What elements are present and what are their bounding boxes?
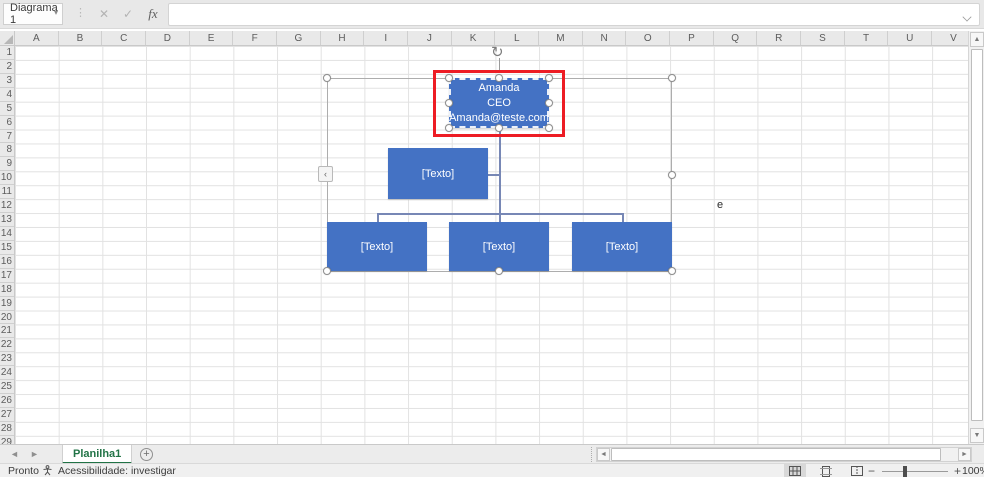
select-all-button[interactable] <box>0 31 15 46</box>
row-header[interactable]: 21 <box>0 324 14 338</box>
row-header[interactable]: 16 <box>0 255 14 269</box>
row-header[interactable]: 12 <box>0 199 14 213</box>
org-node-assistant[interactable]: [Texto] <box>388 148 488 199</box>
tab-scroll-splitter[interactable] <box>591 447 594 462</box>
row-header[interactable]: 10 <box>0 171 14 185</box>
status-bar: Pronto Acessibilidade: investigar − + 10… <box>0 463 984 477</box>
formula-input[interactable] <box>168 3 980 26</box>
scroll-right-icon[interactable]: ► <box>958 448 971 461</box>
status-mode: Pronto <box>8 465 39 477</box>
column-header[interactable]: Q <box>714 31 758 46</box>
org-node-subordinate-3[interactable]: [Texto] <box>572 222 672 271</box>
zoom-slider-track[interactable] <box>882 471 948 472</box>
column-header[interactable]: B <box>59 31 103 46</box>
row-header[interactable]: 7 <box>0 130 14 144</box>
column-header[interactable]: J <box>408 31 452 46</box>
name-box-dropdown-icon[interactable]: ▾ <box>54 8 58 17</box>
row-header[interactable]: 25 <box>0 380 14 394</box>
frame-handle-bottom-right[interactable] <box>668 267 676 275</box>
column-header[interactable]: T <box>845 31 889 46</box>
frame-handle-bottom-mid[interactable] <box>495 267 503 275</box>
column-header[interactable]: A <box>15 31 59 46</box>
row-header[interactable]: 27 <box>0 408 14 422</box>
scroll-down-icon[interactable]: ▼ <box>970 428 984 443</box>
column-header[interactable]: I <box>364 31 408 46</box>
connector-trunk <box>499 128 501 214</box>
row-header[interactable]: 6 <box>0 116 14 130</box>
org-node-subordinate-1[interactable]: [Texto] <box>327 222 427 271</box>
column-header[interactable]: P <box>670 31 714 46</box>
column-header[interactable]: V <box>932 31 968 46</box>
row-header[interactable]: 3 <box>0 74 14 88</box>
frame-handle-top-right[interactable] <box>668 74 676 82</box>
scroll-left-icon[interactable]: ◄ <box>597 448 610 461</box>
row-header[interactable]: 23 <box>0 352 14 366</box>
rotation-handle-icon[interactable]: ↻ <box>491 43 504 61</box>
row-header[interactable]: 1 <box>0 46 14 60</box>
frame-handle-bottom-left[interactable] <box>323 267 331 275</box>
connector-drop-2 <box>499 213 501 222</box>
row-header[interactable]: 13 <box>0 213 14 227</box>
row-header[interactable]: 15 <box>0 241 14 255</box>
accessibility-status[interactable]: Acessibilidade: investigar <box>58 465 176 477</box>
column-header[interactable]: S <box>801 31 845 46</box>
row-header[interactable]: 20 <box>0 311 14 325</box>
column-header[interactable]: H <box>321 31 365 46</box>
selection-highlight-annotation <box>433 70 565 137</box>
connector-drop-3 <box>622 213 624 222</box>
column-header[interactable]: C <box>102 31 146 46</box>
drag-grip-icon: ⋮ <box>75 6 84 19</box>
vertical-scrollbar[interactable]: ▲ ▼ <box>968 31 984 444</box>
enter-button[interactable]: ✓ <box>117 3 139 25</box>
zoom-in-button[interactable]: + <box>954 464 961 477</box>
sheet-tab-planilha1[interactable]: Planilha1 <box>62 445 132 464</box>
column-header[interactable]: U <box>888 31 932 46</box>
scroll-up-icon[interactable]: ▲ <box>970 32 984 47</box>
row-header[interactable]: 2 <box>0 60 14 74</box>
accessibility-icon <box>42 465 53 477</box>
page-break-view-button[interactable] <box>846 464 868 477</box>
row-header[interactable]: 14 <box>0 227 14 241</box>
frame-handle-mid-right[interactable] <box>668 171 676 179</box>
row-header[interactable]: 19 <box>0 297 14 311</box>
excel-window: Diagrama 1 ▾ ⋮ ✕ ✓ fx ABCDEFGHIJKLMNOPQR… <box>0 0 984 477</box>
zoom-level[interactable]: 100% <box>962 465 984 477</box>
row-header[interactable]: 17 <box>0 269 14 283</box>
row-header[interactable]: 26 <box>0 394 14 408</box>
column-header[interactable]: M <box>539 31 583 46</box>
text-pane-toggle-button[interactable]: ‹ <box>318 166 333 182</box>
column-header[interactable]: G <box>277 31 321 46</box>
frame-handle-top-left[interactable] <box>323 74 331 82</box>
row-header[interactable]: 9 <box>0 157 14 171</box>
row-header[interactable]: 8 <box>0 143 14 157</box>
cell-value-Q12[interactable]: e <box>717 199 723 211</box>
row-header[interactable]: 4 <box>0 88 14 102</box>
insert-function-button[interactable]: fx <box>142 3 164 25</box>
view-shortcuts <box>784 464 868 477</box>
row-header[interactable]: 28 <box>0 422 14 436</box>
row-header[interactable]: 18 <box>0 283 14 297</box>
horizontal-scrollbar[interactable]: ◄ ► <box>596 447 972 462</box>
select-all-icon <box>4 35 13 44</box>
zoom-out-button[interactable]: − <box>868 464 875 477</box>
row-header[interactable]: 11 <box>0 185 14 199</box>
connector-drop-1 <box>377 213 379 222</box>
formula-bar: Diagrama 1 ▾ ⋮ ✕ ✓ fx <box>0 0 984 29</box>
connector-assistant <box>488 174 500 176</box>
column-header[interactable]: D <box>146 31 190 46</box>
column-header[interactable]: N <box>583 31 627 46</box>
row-header[interactable]: 5 <box>0 102 14 116</box>
row-headers: 1234567891011121314151617181920212223242… <box>0 46 15 444</box>
row-header[interactable]: 22 <box>0 338 14 352</box>
horizontal-scroll-thumb[interactable] <box>611 448 941 461</box>
sheet-tab-strip: ◄ ► Planilha1 + ◄ ► <box>0 444 984 463</box>
column-header[interactable]: R <box>757 31 801 46</box>
prev-sheet-icon[interactable]: ◄ <box>10 449 19 459</box>
vertical-scroll-thumb[interactable] <box>971 49 983 421</box>
column-header[interactable]: E <box>190 31 234 46</box>
row-header[interactable]: 24 <box>0 366 14 380</box>
name-box[interactable]: Diagrama 1 ▾ <box>3 3 63 25</box>
column-header[interactable]: O <box>626 31 670 46</box>
column-header[interactable]: K <box>452 31 496 46</box>
org-node-subordinate-2[interactable]: [Texto] <box>449 222 549 271</box>
cancel-button[interactable]: ✕ <box>93 3 115 25</box>
new-sheet-button[interactable]: + <box>140 448 153 461</box>
zoom-slider-handle[interactable] <box>903 466 907 477</box>
column-header[interactable]: F <box>233 31 277 46</box>
next-sheet-icon[interactable]: ► <box>30 449 39 459</box>
row-header[interactable]: 29 <box>0 436 14 444</box>
normal-view-button[interactable] <box>784 464 806 477</box>
page-layout-view-button[interactable] <box>815 464 837 477</box>
formula-bar-expand-icon[interactable] <box>962 12 971 21</box>
